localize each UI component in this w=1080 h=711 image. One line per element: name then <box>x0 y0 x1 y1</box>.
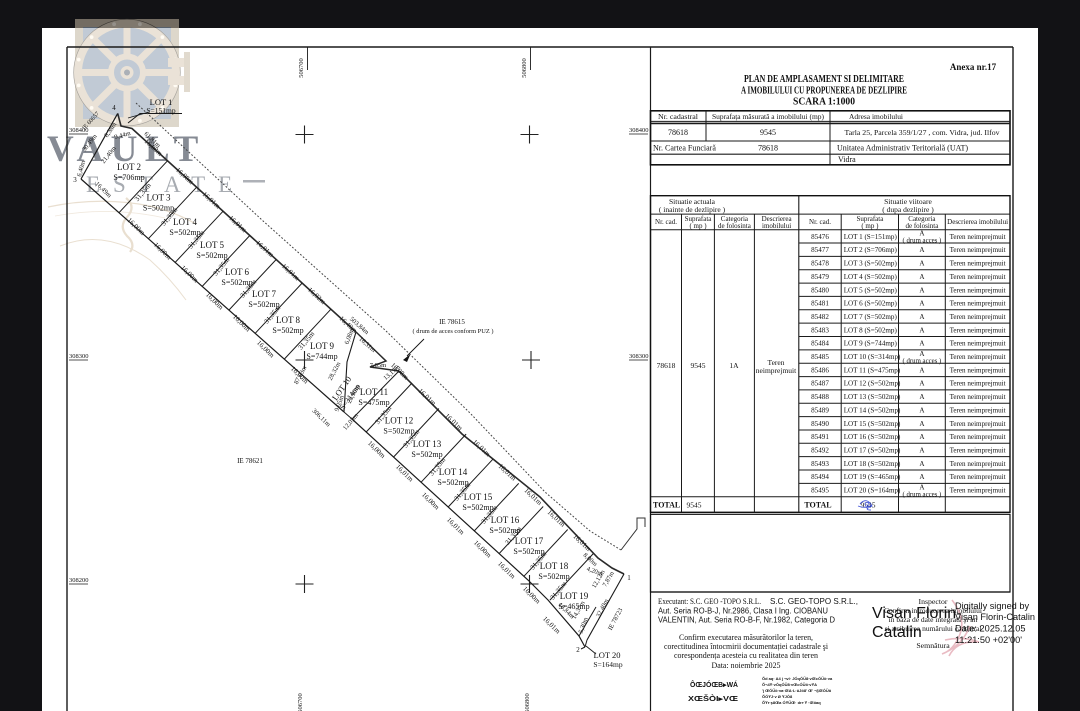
svg-text:LOT 4: LOT 4 <box>173 217 198 227</box>
svg-text:85494: 85494 <box>811 473 829 481</box>
svg-text:A: A <box>919 366 925 374</box>
svg-text:'j ŒÓÜö·va·ŒA·L·üJö8' Œ' ¬§ŒÓÜ: 'j ŒÓÜö·va·ŒA·L·üJö8' Œ' ¬§ŒÓÜö <box>762 688 832 693</box>
svg-text:Teren neimprejmuit: Teren neimprejmuit <box>950 473 1006 481</box>
svg-text:Teren neimprejmuit: Teren neimprejmuit <box>950 366 1006 374</box>
svg-text:LOT 19 (S=465mp): LOT 19 (S=465mp) <box>844 473 901 481</box>
svg-text:Confirm executarea măsurătoril: Confirm executarea măsurătorilor la tere… <box>679 633 813 642</box>
svg-text:506700: 506700 <box>298 58 305 78</box>
svg-text:A: A <box>919 447 925 455</box>
svg-text:Semnătura: Semnătura <box>916 641 950 650</box>
svg-text:LOT 13: LOT 13 <box>413 439 442 449</box>
svg-text:85486: 85486 <box>811 366 829 374</box>
svg-text:LOT 9: LOT 9 <box>310 341 335 351</box>
svg-text:308300: 308300 <box>69 353 89 360</box>
svg-text:LOT 6: LOT 6 <box>225 267 250 277</box>
svg-text:4: 4 <box>112 104 116 112</box>
svg-text:S=502mp: S=502mp <box>272 326 303 335</box>
svg-text:85492: 85492 <box>811 447 829 455</box>
svg-text:85495: 85495 <box>811 487 829 495</box>
svg-text:LOT 15 (S=502mp): LOT 15 (S=502mp) <box>844 420 901 428</box>
svg-text:( mp ): ( mp ) <box>689 222 707 230</box>
svg-text:LOT 12: LOT 12 <box>385 416 414 426</box>
svg-text:Teren neimprejmuit: Teren neimprejmuit <box>950 433 1006 441</box>
svg-text:LOT 13 (S=502mp): LOT 13 (S=502mp) <box>844 393 901 401</box>
svg-text:( drum acces ): ( drum acces ) <box>903 238 942 245</box>
svg-text:Vidra: Vidra <box>838 155 856 164</box>
svg-text:LOT 5 (S=502mp): LOT 5 (S=502mp) <box>844 286 898 294</box>
svg-text:LOT 20: LOT 20 <box>594 650 621 660</box>
svg-text:TOTAL: TOTAL <box>653 501 680 510</box>
svg-text:Nr. cad.: Nr. cad. <box>809 218 831 226</box>
svg-text:LOT 7: LOT 7 <box>252 289 277 299</box>
svg-text:corectitudinea întocmirii docu: corectitudinea întocmirii documentației … <box>664 642 829 651</box>
svg-text:VALENTIN, Aut. Seria RO-B-F, N: VALENTIN, Aut. Seria RO-B-F, Nr.1982, Ca… <box>658 616 835 625</box>
svg-text:Executant: S.C. GEO -TOPO S.R.: Executant: S.C. GEO -TOPO S.R.L. <box>658 597 761 606</box>
svg-text:Teren neimprejmuit: Teren neimprejmuit <box>950 260 1006 268</box>
svg-text:85485: 85485 <box>811 353 829 361</box>
svg-text:9545: 9545 <box>760 128 776 137</box>
svg-text:TOTAL: TOTAL <box>804 501 831 510</box>
svg-text:LOT 18 (S=502mp): LOT 18 (S=502mp) <box>844 460 901 468</box>
svg-text:Teren neimprejmuit: Teren neimprejmuit <box>950 380 1006 388</box>
svg-text:LOT 2: LOT 2 <box>117 162 141 172</box>
svg-text:Teren neimprejmuit: Teren neimprejmuit <box>950 460 1006 468</box>
svg-text:85477: 85477 <box>811 246 829 254</box>
svg-text:Teren neimprejmuit: Teren neimprejmuit <box>950 406 1006 414</box>
svg-text:308400: 308400 <box>629 127 649 134</box>
svg-text:Teren neimprejmuit: Teren neimprejmuit <box>950 246 1006 254</box>
svg-text:( drum de acces conform PUZ ): ( drum de acces conform PUZ ) <box>413 328 494 335</box>
svg-text:A: A <box>919 246 925 254</box>
svg-text:S=475mp: S=475mp <box>358 398 389 407</box>
svg-text:85487: 85487 <box>811 380 829 388</box>
svg-text:LOT 9 (S=744mp): LOT 9 (S=744mp) <box>844 340 898 348</box>
svg-text:78618: 78618 <box>758 144 778 153</box>
svg-text:85490: 85490 <box>811 420 829 428</box>
svg-text:7,85m: 7,85m <box>370 362 386 369</box>
svg-text:85481: 85481 <box>811 300 829 308</box>
svg-text:corespondența acesteia cu real: corespondența acesteia cu realitatea din… <box>674 651 818 660</box>
svg-text:Teren neimprejmuit: Teren neimprejmuit <box>950 353 1006 361</box>
svg-text:LOT 3 (S=502mp): LOT 3 (S=502mp) <box>844 260 898 268</box>
svg-text:506800: 506800 <box>521 58 528 78</box>
svg-text:LOT 7 (S=502mp): LOT 7 (S=502mp) <box>844 313 898 321</box>
svg-text:de folosinta: de folosinta <box>718 222 752 230</box>
svg-text:85484: 85484 <box>811 340 829 348</box>
svg-text:IE 78615: IE 78615 <box>439 318 465 326</box>
svg-text:85488: 85488 <box>811 393 829 401</box>
svg-text:78618: 78618 <box>668 128 688 137</box>
svg-text:85483: 85483 <box>811 326 829 334</box>
svg-text:Aut. Seria RO-B-J, Nr.2986, Cl: Aut. Seria RO-B-J, Nr.2986, Clasa I Ing.… <box>658 607 828 616</box>
svg-text:S=151mp: S=151mp <box>146 106 175 115</box>
svg-text:506700: 506700 <box>297 693 304 711</box>
svg-text:Anexa nr.17: Anexa nr.17 <box>950 62 997 72</box>
svg-text:A: A <box>919 230 925 238</box>
svg-text:LOT 16: LOT 16 <box>491 515 520 525</box>
svg-text:Teren neimprejmuit: Teren neimprejmuit <box>950 286 1006 294</box>
svg-text:9545: 9545 <box>691 361 706 370</box>
svg-text:Õd aq· A4 j ¬vl· JÓqÓÜ8·vŒcÓÜö: Õd aq· A4 j ¬vl· JÓqÓÜ8·vŒcÓÜö·va <box>762 676 833 681</box>
svg-text:85482: 85482 <box>811 313 829 321</box>
svg-text:Visan Florin-Catalin: Visan Florin-Catalin <box>955 612 1035 622</box>
svg-text:LOT 19: LOT 19 <box>560 591 589 601</box>
svg-text:( mp ): ( mp ) <box>861 222 879 230</box>
svg-text:308300: 308300 <box>629 353 649 360</box>
svg-text:Teren neimprejmuit: Teren neimprejmuit <box>950 300 1006 308</box>
svg-text:LOT 4 (S=502mp): LOT 4 (S=502mp) <box>844 273 898 281</box>
svg-text:A: A <box>919 406 925 414</box>
svg-text:( drum acces ): ( drum acces ) <box>903 491 942 498</box>
svg-text:LOT 2 (S=706mp): LOT 2 (S=706mp) <box>844 246 898 254</box>
svg-text:Teren neimprejmuit: Teren neimprejmuit <box>950 420 1006 428</box>
svg-text:A: A <box>919 350 925 358</box>
svg-text:Adresa imobilului: Adresa imobilului <box>849 112 903 121</box>
svg-text:A: A <box>919 483 925 491</box>
svg-text:Teren neimprejmuit: Teren neimprejmuit <box>950 313 1006 321</box>
svg-text:Nr. cadastral: Nr. cadastral <box>658 112 698 121</box>
svg-text:XŒŠÒI▸VŒ: XŒŠÒI▸VŒ <box>688 694 738 703</box>
svg-text:A: A <box>919 260 925 268</box>
svg-text:LOT 6 (S=502mp): LOT 6 (S=502mp) <box>844 300 898 308</box>
svg-text:A: A <box>919 273 925 281</box>
svg-text:LOT 10 (S=314mp): LOT 10 (S=314mp) <box>844 353 901 361</box>
svg-text:85480: 85480 <box>811 286 829 294</box>
svg-text:imobilului: imobilului <box>762 222 791 230</box>
svg-text:Suprafața măsurată a imobilulu: Suprafața măsurată a imobilului (mp) <box>712 112 825 121</box>
svg-text:neimprejmuit: neimprejmuit <box>756 366 797 375</box>
svg-text:LOT 12 (S=502mp): LOT 12 (S=502mp) <box>844 380 901 388</box>
svg-text:A: A <box>919 326 925 334</box>
svg-text:( dupa dezlipire ): ( dupa dezlipire ) <box>882 205 934 214</box>
svg-text:A: A <box>919 286 925 294</box>
svg-text:Teren neimprejmuit: Teren neimprejmuit <box>950 326 1006 334</box>
svg-text:1A: 1A <box>729 361 739 370</box>
svg-text:LOT 18: LOT 18 <box>540 561 569 571</box>
svg-text:308200: 308200 <box>69 577 89 584</box>
svg-text:LOT 15: LOT 15 <box>464 492 493 502</box>
svg-text:LOT 16 (S=502mp): LOT 16 (S=502mp) <box>844 433 901 441</box>
svg-text:Unitatea Administrativ Teritor: Unitatea Administrativ Teritorială (UAT) <box>837 144 968 153</box>
svg-text:LOT 3: LOT 3 <box>146 193 171 203</box>
svg-text:S=502mp: S=502mp <box>538 572 569 581</box>
svg-text:A: A <box>919 300 925 308</box>
svg-text:ÕÓŸJ·v Ø ŸJÓ8: ÕÓŸJ·v Ø ŸJÓ8 <box>762 694 793 699</box>
svg-text:85478: 85478 <box>811 260 829 268</box>
svg-text:506800: 506800 <box>524 693 531 711</box>
svg-text:ÔŒJÓŒB▸WÁ: ÔŒJÓŒB▸WÁ <box>690 680 738 689</box>
svg-text:Teren neimprejmuit: Teren neimprejmuit <box>950 447 1006 455</box>
svg-text:S=502mp: S=502mp <box>411 450 442 459</box>
svg-text:LOT 17 (S=502mp): LOT 17 (S=502mp) <box>844 447 901 455</box>
svg-text:S=164mp: S=164mp <box>593 660 622 669</box>
svg-text:85479: 85479 <box>811 273 829 281</box>
svg-text:S=744mp: S=744mp <box>306 352 337 361</box>
svg-text:85489: 85489 <box>811 406 829 414</box>
svg-text:A: A <box>919 420 925 428</box>
svg-text:LOT 14: LOT 14 <box>439 467 468 477</box>
svg-text:Teren neimprejmuit: Teren neimprejmuit <box>950 233 1006 241</box>
svg-text:ÕŸr·ş8Œa ÓŸÜŒ· drr·Ÿ ·Œöaq: ÕŸr·ş8Œa ÓŸÜŒ· drr·Ÿ ·Œöaq <box>762 700 821 705</box>
svg-text:85491: 85491 <box>811 433 829 441</box>
svg-text:PLAN DE AMPLASAMENT SI DELIMIT: PLAN DE AMPLASAMENT SI DELIMITARE <box>744 74 904 85</box>
svg-text:LOT 17: LOT 17 <box>515 536 544 546</box>
svg-text:A: A <box>919 313 925 321</box>
svg-text:LOT 11 (S=475mp): LOT 11 (S=475mp) <box>844 366 901 374</box>
svg-text:LOT 8: LOT 8 <box>276 315 301 325</box>
svg-text:Digitally signed by: Digitally signed by <box>955 601 1029 611</box>
svg-text:( drum acces ): ( drum acces ) <box>903 358 942 365</box>
svg-text:Teren neimprejmuit: Teren neimprejmuit <box>950 273 1006 281</box>
svg-text:A: A <box>919 460 925 468</box>
svg-text:LOT 20 (S=164mp): LOT 20 (S=164mp) <box>844 487 901 495</box>
svg-text:A: A <box>919 433 925 441</box>
svg-text:Date: 2025.12.05: Date: 2025.12.05 <box>955 624 1026 634</box>
svg-text:LOT 14 (S=502mp): LOT 14 (S=502mp) <box>844 406 901 414</box>
svg-text:Nr. cad.: Nr. cad. <box>655 218 677 226</box>
svg-text:LOT 1 (S=151mp): LOT 1 (S=151mp) <box>844 233 898 241</box>
svg-text:2: 2 <box>576 646 580 654</box>
svg-text:Tarla 25, Parcela 359/1/27 ,: Tarla 25, Parcela 359/1/27 , com. Vidra,… <box>845 128 1000 137</box>
svg-text:Õ¬4Ÿ·vÓqÓÜ8·vŒcÓÜö·vŸA: Õ¬4Ÿ·vÓqÓÜ8·vŒcÓÜö·vŸA <box>762 682 817 687</box>
svg-text:LOT 11: LOT 11 <box>360 387 388 397</box>
svg-text:11:21:50 +02'00': 11:21:50 +02'00' <box>955 635 1022 645</box>
svg-text:A IMOBILULUI CU PROPUNEREA DE: A IMOBILULUI CU PROPUNEREA DE DEZLIPIRE <box>741 86 907 97</box>
svg-text:SCARA 1:1000: SCARA 1:1000 <box>793 97 855 108</box>
svg-text:Teren neimprejmuit: Teren neimprejmuit <box>950 487 1006 495</box>
svg-text:3: 3 <box>73 176 77 184</box>
svg-text:Visan Florin-: Visan Florin- <box>872 605 962 622</box>
svg-text:IE 78621: IE 78621 <box>237 457 263 465</box>
svg-text:78618: 78618 <box>657 361 676 370</box>
svg-text:A: A <box>919 473 925 481</box>
svg-text:85493: 85493 <box>811 460 829 468</box>
svg-text:Data: noiembrie 2025: Data: noiembrie 2025 <box>712 661 781 670</box>
svg-text:LOT 8 (S=502mp): LOT 8 (S=502mp) <box>844 326 898 334</box>
svg-text:A: A <box>919 380 925 388</box>
svg-text:A: A <box>919 393 925 401</box>
svg-text:Teren neimprejmuit: Teren neimprejmuit <box>950 393 1006 401</box>
svg-text:S=706mp: S=706mp <box>113 173 144 182</box>
svg-text:A: A <box>919 340 925 348</box>
svg-text:LOT 5: LOT 5 <box>200 240 225 250</box>
svg-text:Descrierea imobilului: Descrierea imobilului <box>947 218 1008 226</box>
svg-text:S.C. GEO-TOPO S.R.L.,: S.C. GEO-TOPO S.R.L., <box>770 597 858 606</box>
svg-text:Catalin: Catalin <box>872 624 922 641</box>
svg-text:1: 1 <box>627 574 631 582</box>
svg-text:Teren neimprejmuit: Teren neimprejmuit <box>950 340 1006 348</box>
svg-text:( inainte de dezlipire ): ( inainte de dezlipire ) <box>659 205 726 214</box>
svg-text:85476: 85476 <box>811 233 829 241</box>
svg-text:Nr. Cartea Funciară: Nr. Cartea Funciară <box>653 144 716 153</box>
svg-text:9545: 9545 <box>687 501 702 510</box>
